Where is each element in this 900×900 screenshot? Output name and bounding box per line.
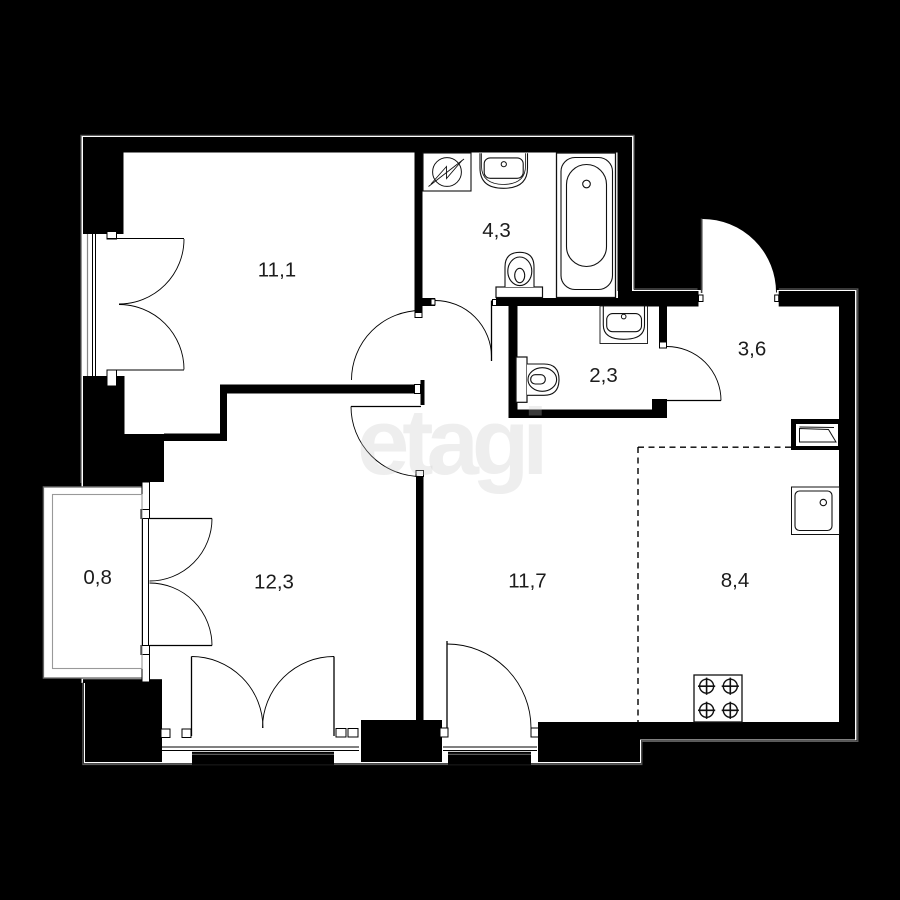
svg-text:12,3: 12,3 bbox=[254, 571, 294, 594]
svg-text:0,8: 0,8 bbox=[83, 566, 112, 589]
svg-text:etagi: etagi bbox=[357, 389, 542, 494]
svg-text:2,3: 2,3 bbox=[589, 364, 618, 387]
svg-text:4,3: 4,3 bbox=[482, 219, 511, 242]
svg-text:8,4: 8,4 bbox=[721, 569, 750, 592]
svg-text:11,7: 11,7 bbox=[508, 570, 546, 593]
svg-text:11,1: 11,1 bbox=[258, 259, 296, 282]
svg-text:3,6: 3,6 bbox=[738, 338, 767, 361]
